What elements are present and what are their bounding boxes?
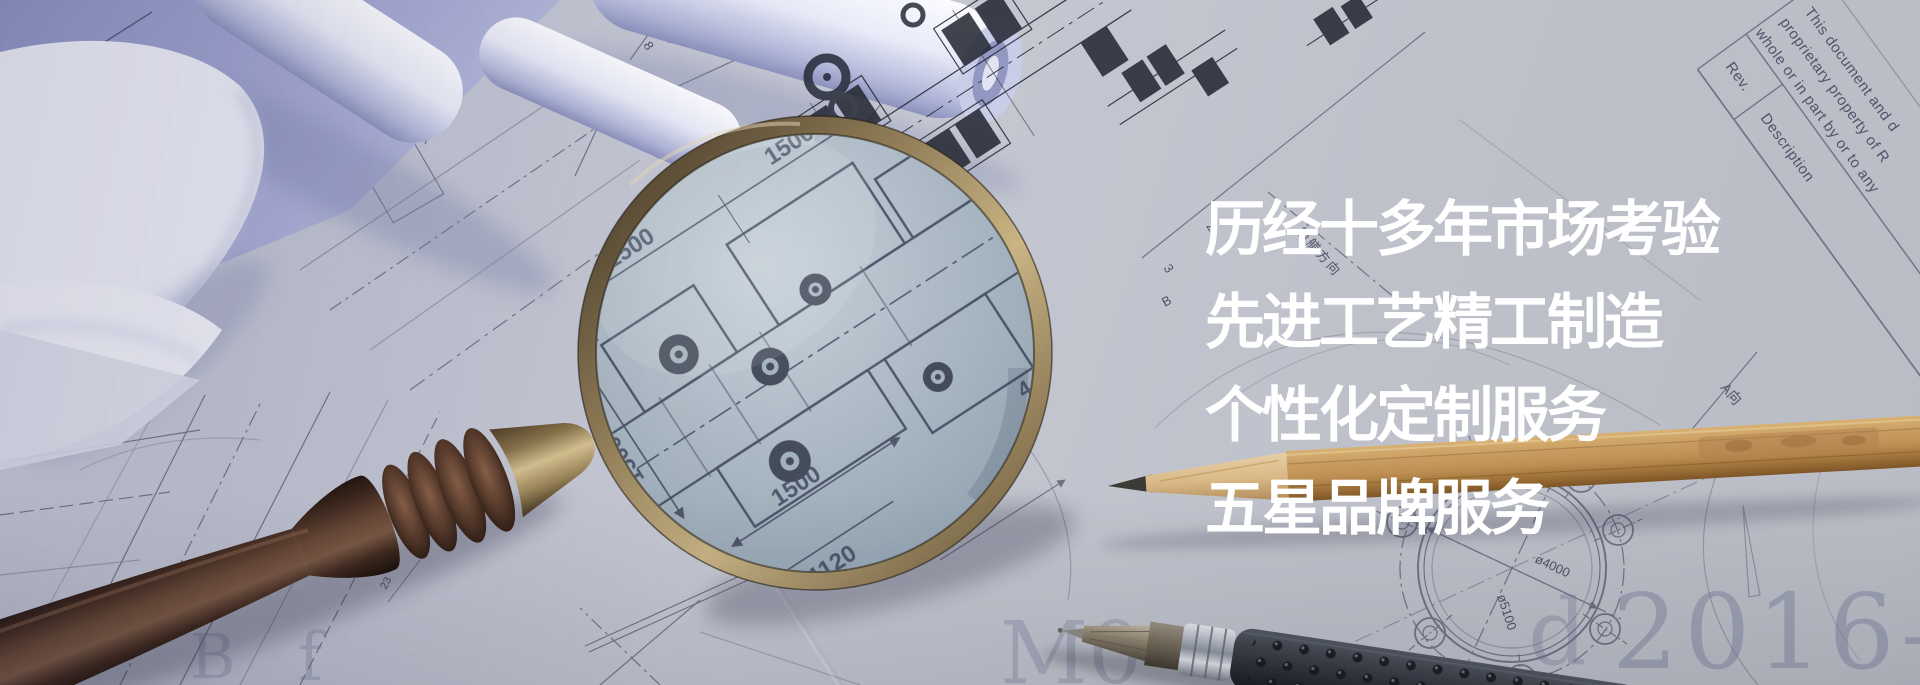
dim-label-8: 8 xyxy=(640,39,657,53)
pen-chrome-band xyxy=(1177,623,1236,682)
dim-label-b: B xyxy=(1159,292,1174,309)
dia-5100-label: ø5100 xyxy=(1494,592,1520,632)
title-block-description: Description xyxy=(1757,110,1818,185)
hero-banner: 600 3900 8 6 2 3 B 23 船艏方向 A向 ø4000 ø510… xyxy=(0,0,1920,685)
dia-4000-label: ø4000 xyxy=(1533,551,1573,580)
watermarks: 2016— d M0 B f xyxy=(190,571,1920,685)
hero-text-block: 历经十多年市场考验 先进工艺精工制造 个性化定制服务 五星品牌服务 xyxy=(1205,183,1718,555)
hero-line-1: 历经十多年市场考验 xyxy=(1205,183,1718,276)
watermark-d: d xyxy=(1528,579,1587,685)
view-a-label: A向 xyxy=(1718,380,1745,408)
hero-line-2: 先进工艺精工制造 xyxy=(1205,276,1718,369)
title-block-rev: Rev. xyxy=(1722,59,1754,95)
hero-line-3: 个性化定制服务 xyxy=(1205,369,1718,462)
watermark-year: 2016— xyxy=(1612,571,1920,685)
dim-label-3: 3 xyxy=(1161,261,1177,276)
hero-line-4: 五星品牌服务 xyxy=(1205,462,1718,555)
